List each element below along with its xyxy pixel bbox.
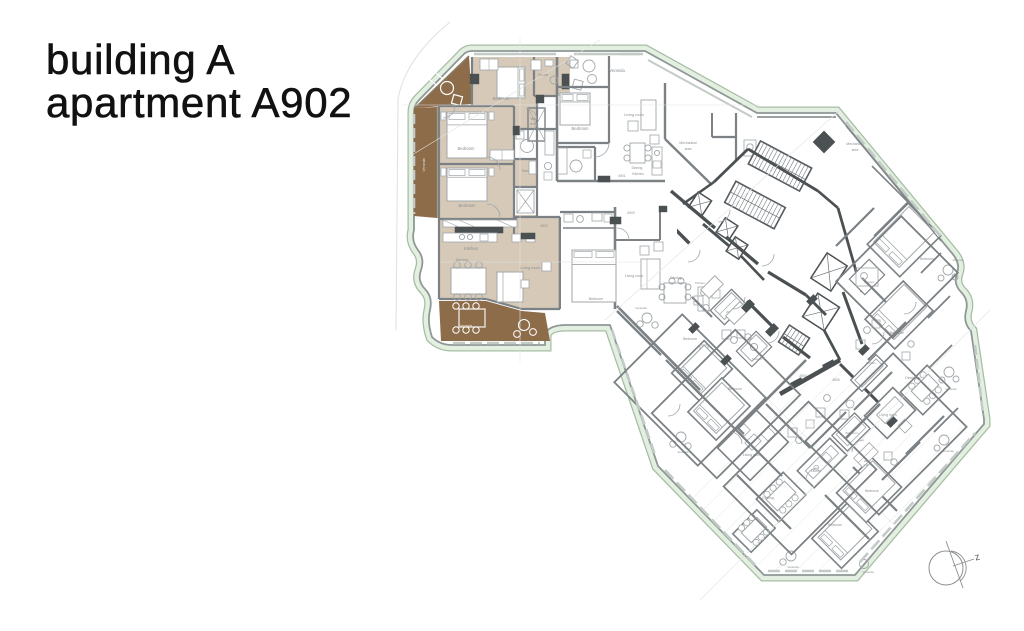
svg-text:A904: A904 [799, 374, 807, 378]
svg-text:Bedroom: Bedroom [683, 337, 697, 341]
svg-text:Dinning: Dinning [456, 258, 468, 262]
svg-text:Bedroom: Bedroom [459, 203, 477, 208]
svg-text:Shower: Shower [752, 357, 762, 361]
svg-text:Living room: Living room [624, 113, 644, 117]
svg-text:Bedroom: Bedroom [458, 146, 476, 151]
svg-text:Living room: Living room [625, 274, 643, 278]
svg-text:area: area [685, 147, 692, 151]
svg-text:Bedroom: Bedroom [572, 126, 590, 131]
svg-text:Kitchen: Kitchen [632, 172, 643, 176]
svg-text:area: area [852, 148, 859, 152]
svg-text:drobe: drobe [530, 122, 539, 126]
svg-text:A903: A903 [627, 211, 635, 215]
svg-text:A901: A901 [618, 174, 626, 178]
svg-text:Kitchen: Kitchen [866, 361, 876, 365]
svg-text:A905: A905 [832, 378, 840, 382]
svg-text:Dinning: Dinning [762, 496, 774, 500]
svg-text:Veranda: Veranda [422, 158, 426, 171]
svg-text:Bedroom: Bedroom [728, 387, 742, 391]
svg-text:Living room: Living room [520, 266, 540, 270]
svg-text:Living room: Living room [879, 413, 897, 417]
svg-text:Veranda: Veranda [635, 306, 647, 310]
svg-text:Veranda: Veranda [460, 324, 473, 328]
svg-text:Bedroom: Bedroom [828, 523, 842, 527]
svg-text:Bedroom: Bedroom [920, 257, 934, 261]
svg-text:A902: A902 [540, 224, 548, 228]
svg-text:Veranda: Veranda [952, 258, 964, 262]
svg-text:Veranda: Veranda [945, 387, 957, 391]
svg-text:Shower: Shower [864, 280, 874, 284]
svg-text:Veranda: Veranda [787, 565, 799, 569]
svg-text:Kitchen: Kitchen [464, 246, 479, 251]
svg-text:z: z [974, 552, 982, 564]
svg-text:Kitchen: Kitchen [695, 281, 705, 285]
svg-text:Mechanical: Mechanical [679, 141, 696, 145]
svg-text:Shower: Shower [538, 73, 550, 77]
svg-text:Veranda: Veranda [609, 68, 625, 73]
svg-text:Dinning: Dinning [670, 276, 681, 280]
svg-text:Bedroom: Bedroom [865, 489, 879, 493]
svg-text:Bedroom: Bedroom [589, 297, 604, 301]
svg-text:Veranda: Veranda [862, 570, 874, 574]
svg-text:Dinning: Dinning [632, 166, 643, 170]
